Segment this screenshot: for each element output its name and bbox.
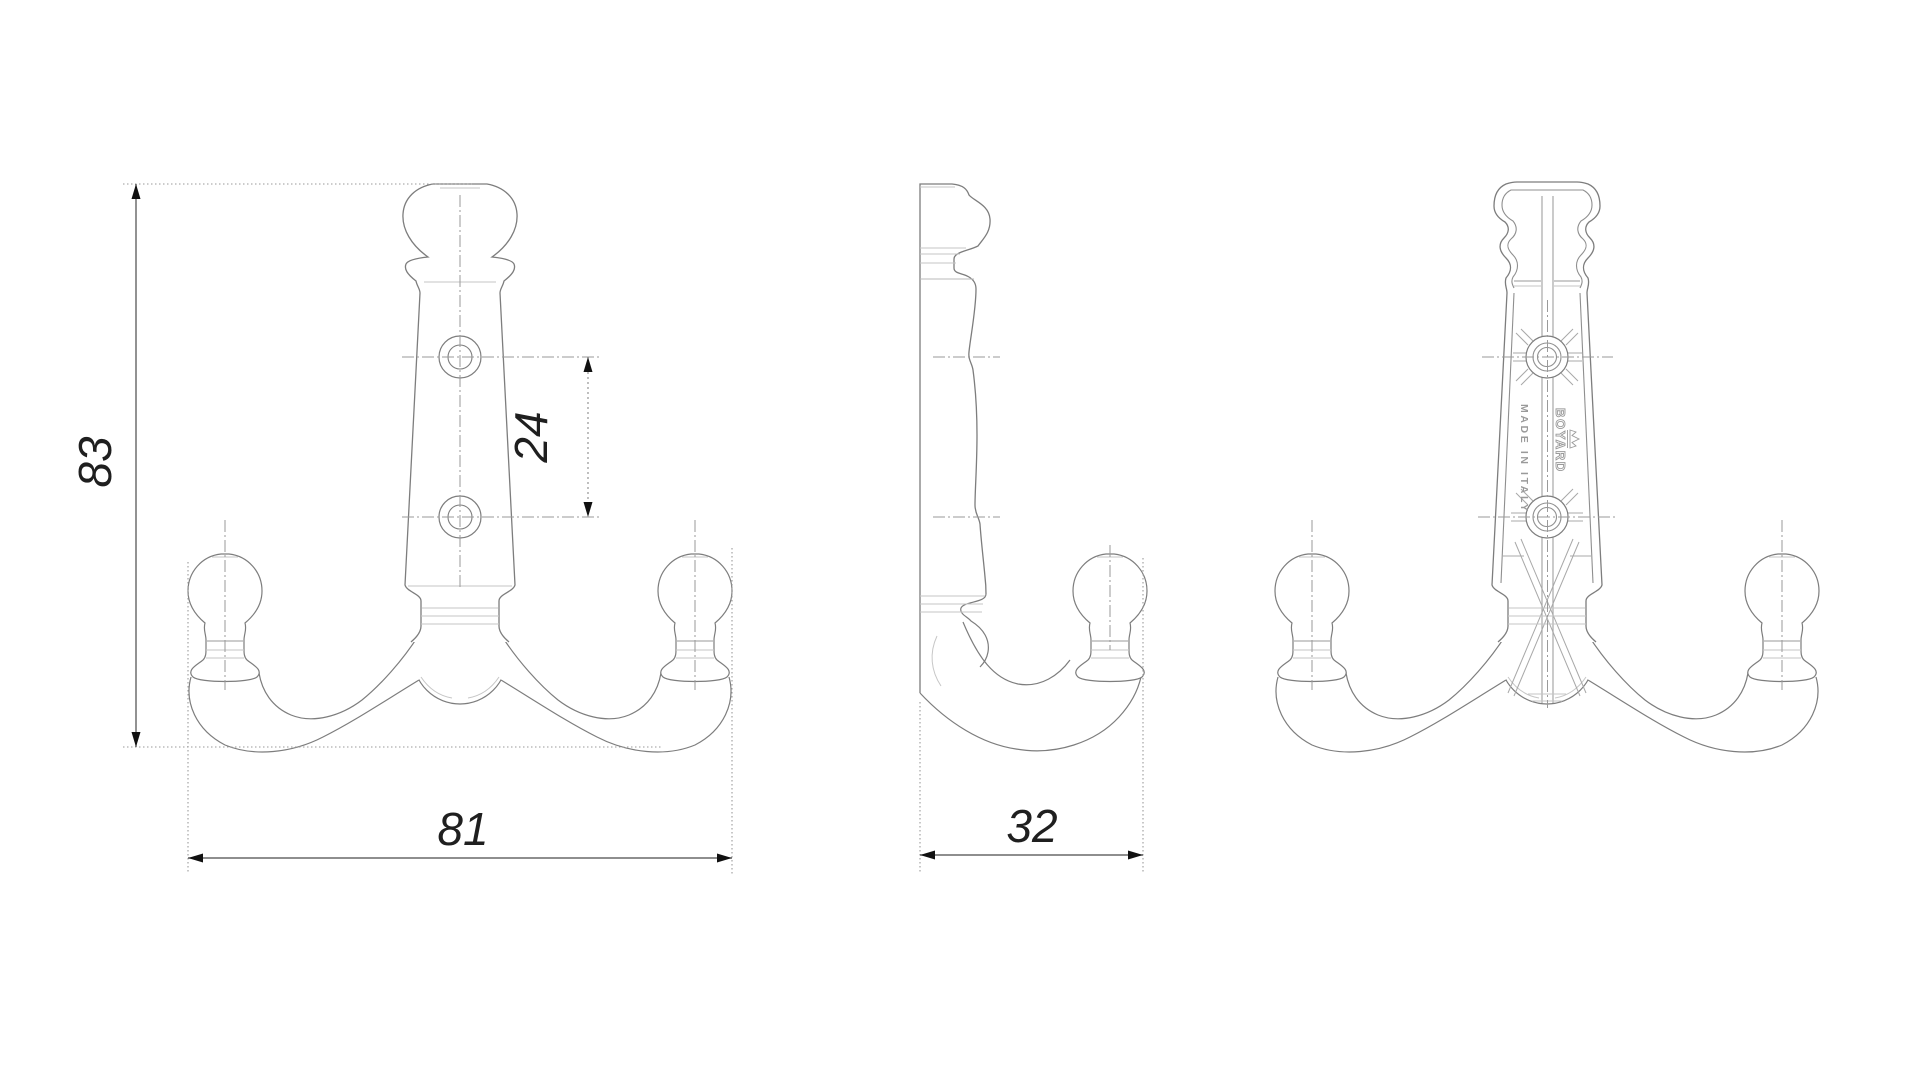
origin-text-group: MADE IN ITALY — [1518, 404, 1530, 514]
dimension-height: 83 — [69, 184, 662, 747]
dim-height-label: 83 — [69, 436, 121, 488]
dimension-hole-spacing: 24 — [505, 357, 593, 517]
technical-drawing-canvas: MADE IN ITALY BOYARD 83 — [0, 0, 1920, 1080]
dim-hole-spacing-label: 24 — [505, 411, 557, 463]
boyard-logo-text: BOYARD — [1553, 408, 1568, 473]
side-slab — [920, 184, 990, 693]
dim-width-label: 81 — [437, 803, 488, 855]
front-post — [403, 184, 517, 642]
dim-depth-label: 32 — [1006, 800, 1057, 852]
back-view: MADE IN ITALY BOYARD — [1275, 182, 1819, 752]
made-in-italy-text: MADE IN ITALY — [1518, 404, 1530, 514]
side-view — [920, 184, 1147, 751]
front-view — [188, 184, 732, 752]
drawing-page: MADE IN ITALY BOYARD 83 — [0, 0, 1920, 1080]
back-centerlines — [1312, 300, 1782, 708]
